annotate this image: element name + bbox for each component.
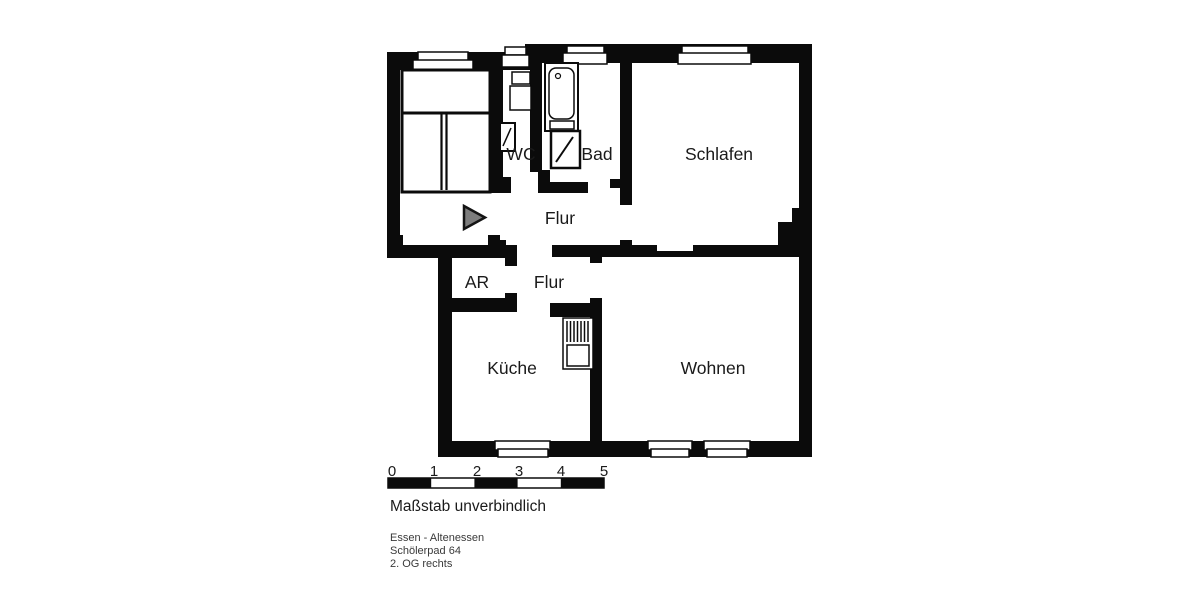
wall-segment	[438, 245, 452, 457]
room-label-ar: AR	[465, 272, 489, 292]
room-label-bad: Bad	[581, 144, 612, 164]
wall-segment	[778, 222, 812, 257]
door-icon-bad	[551, 131, 580, 168]
scale-bar-segment	[561, 478, 604, 488]
room-label-schlafen: Schlafen	[685, 144, 753, 164]
address-line-1: Essen - Altenessen	[390, 532, 484, 544]
wall-segment	[792, 208, 812, 224]
wall-segment	[590, 257, 602, 263]
window-icon	[563, 46, 607, 64]
room-label-wc: WC	[506, 144, 535, 164]
window-icon	[648, 441, 692, 457]
wall-segment	[387, 235, 403, 245]
bathtub-icon	[545, 63, 578, 131]
door-threshold	[657, 251, 693, 257]
wall-segment	[452, 298, 517, 312]
room-label-flur-oben: Flur	[545, 208, 575, 228]
window-icon	[678, 46, 751, 64]
address-line-3: 2. OG rechts	[390, 558, 453, 570]
stove-icon	[563, 318, 593, 369]
scale-bar: 0 1 2 3 4 5	[388, 463, 608, 488]
window-icon	[495, 441, 550, 457]
window-icon	[704, 441, 750, 457]
room-label-flur-unten: Flur	[534, 272, 564, 292]
wall-segment	[538, 182, 588, 193]
wall-segment	[387, 52, 400, 258]
window-icon	[502, 47, 529, 67]
wall-segment	[505, 258, 517, 266]
wall-segment	[693, 245, 782, 257]
entrance-arrow-icon	[464, 206, 485, 229]
window-icon	[413, 52, 473, 70]
toilet-icon	[510, 72, 531, 110]
wall-segment	[552, 245, 657, 257]
wall-segment	[497, 240, 506, 245]
wall-segment	[438, 441, 812, 457]
wall-segment	[620, 62, 632, 205]
wall-segment	[538, 170, 550, 182]
scale-bar-segment	[388, 478, 431, 488]
scale-bar-segment	[474, 478, 517, 488]
wall-segment	[387, 245, 517, 258]
room-label-wohnen: Wohnen	[681, 358, 746, 378]
scale-caption: Maßstab unverbindlich	[390, 498, 546, 515]
address-line-2: Schölerpad 64	[390, 545, 461, 557]
wall-segment	[610, 179, 620, 188]
address-block: Essen - Altenessen Schölerpad 64 2. OG r…	[390, 532, 484, 570]
floor-plan-drawing: WC Bad Schlafen Flur AR Flur Küche Wohne…	[0, 0, 1200, 600]
stairs-icon	[402, 70, 490, 192]
wall-segment	[503, 177, 511, 193]
wall-segment	[620, 240, 632, 245]
floor-plan-page: WC Bad Schlafen Flur AR Flur Küche Wohne…	[0, 0, 1200, 600]
room-label-kueche: Küche	[487, 358, 537, 378]
